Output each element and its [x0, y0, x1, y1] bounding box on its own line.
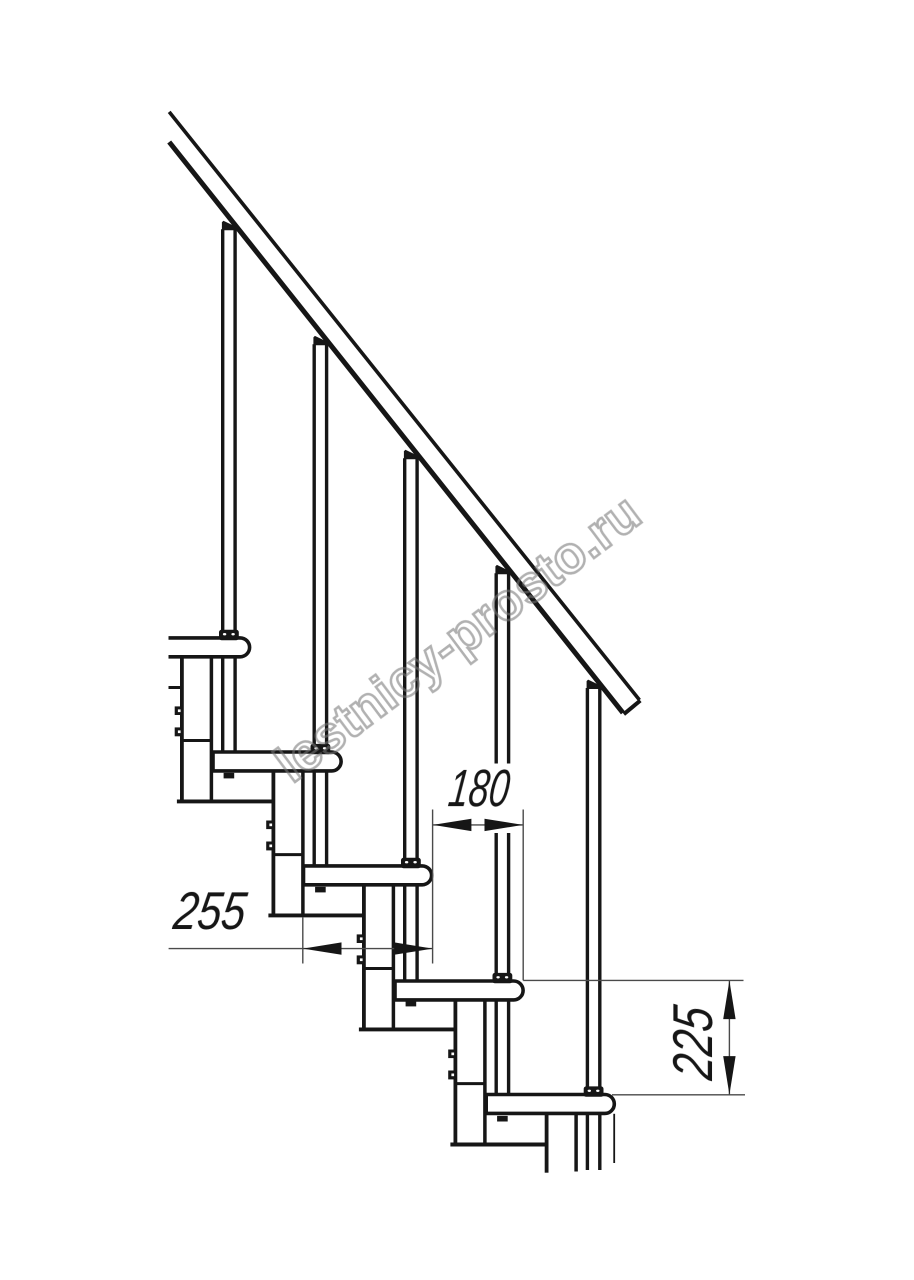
svg-text:225: 225 [662, 1001, 724, 1083]
svg-text:180: 180 [446, 759, 514, 818]
svg-text:255: 255 [169, 882, 250, 941]
